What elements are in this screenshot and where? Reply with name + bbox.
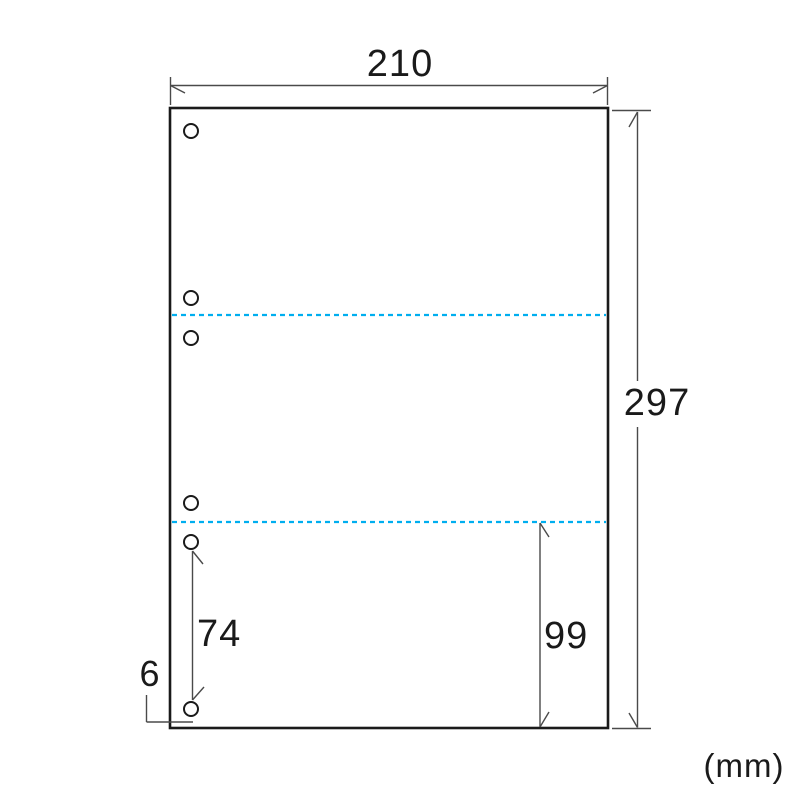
- hole-gap-dimension-label: 74: [197, 613, 241, 655]
- section-height-dimension-label: 99: [544, 615, 588, 657]
- punch-hole-5: [184, 535, 198, 549]
- diagram-canvas: 210 297 74 99: [0, 0, 800, 800]
- punch-hole-1: [184, 124, 198, 138]
- width-dimension-label: 210: [367, 43, 433, 85]
- arrowhead-top: [629, 112, 638, 127]
- arrowhead-right: [593, 86, 608, 94]
- dimension-height: 297: [612, 111, 690, 729]
- dimension-drawing: 210 297 74 99: [0, 0, 800, 800]
- punch-hole-2: [184, 291, 198, 305]
- unit-label: (mm): [704, 747, 785, 784]
- arrowhead-bottom: [629, 713, 638, 728]
- punch-hole-4: [184, 496, 198, 510]
- hole-dimension-label: 6: [139, 653, 160, 694]
- punch-hole-3: [184, 331, 198, 345]
- punch-hole-6: [184, 702, 198, 716]
- height-dimension-label: 297: [624, 382, 690, 424]
- arrowhead-left: [171, 86, 186, 94]
- dimension-width: 210: [171, 43, 608, 105]
